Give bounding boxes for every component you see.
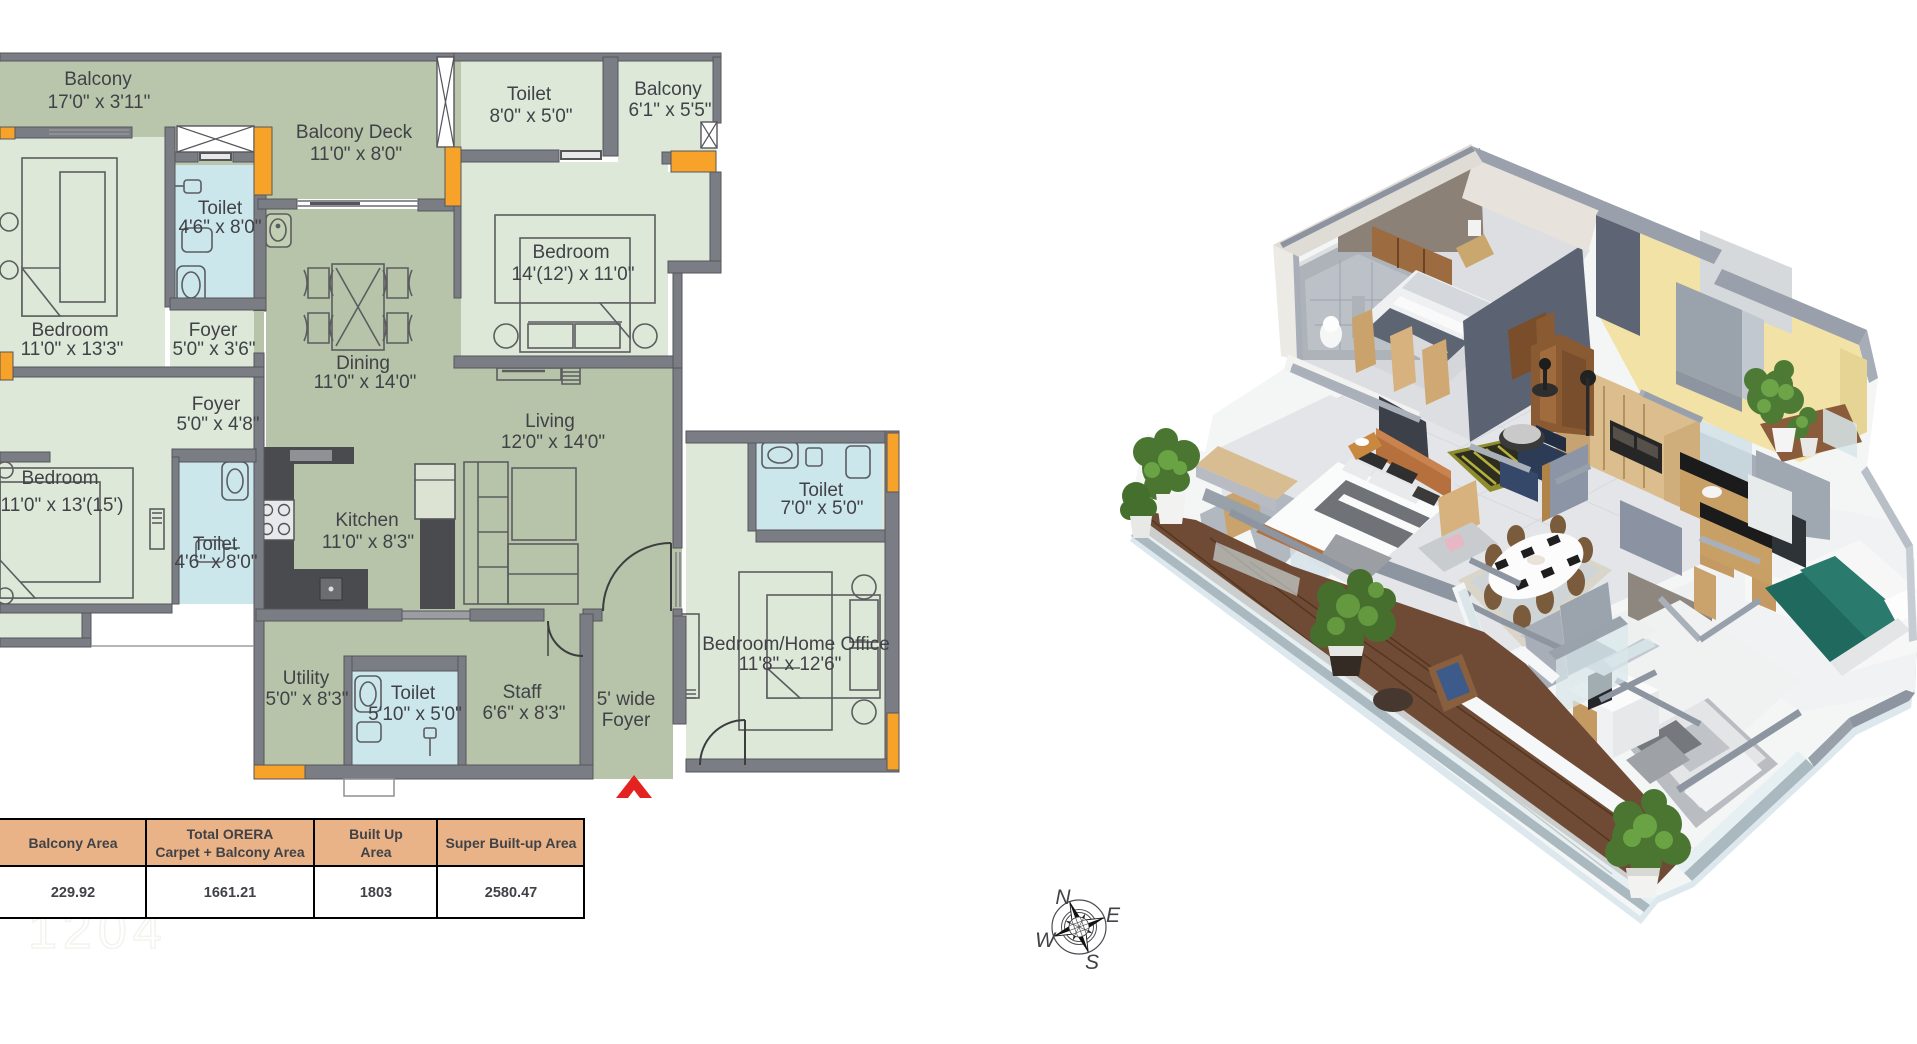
svg-text:11'0" x 13'3": 11'0" x 13'3" (21, 339, 124, 360)
svg-text:14'(12') x 11'0": 14'(12') x 11'0" (512, 264, 635, 285)
svg-text:11'0" x 13'(15'): 11'0" x 13'(15') (1, 495, 124, 516)
svg-text:11'0" x 14'0": 11'0" x 14'0" (314, 372, 417, 393)
svg-text:Utility: Utility (283, 668, 330, 689)
svg-text:Bedroom/Home Office: Bedroom/Home Office (702, 634, 890, 655)
svg-text:S: S (1085, 951, 1099, 974)
svg-text:1661.21: 1661.21 (204, 885, 256, 901)
svg-text:N: N (1055, 886, 1071, 909)
svg-text:Toilet: Toilet (391, 683, 436, 704)
svg-text:6'6" x 8'3": 6'6" x 8'3" (482, 703, 565, 724)
svg-text:5'10" x 5'0": 5'10" x 5'0" (368, 704, 462, 725)
svg-text:229.92: 229.92 (51, 885, 95, 901)
svg-text:5'0" x 8'3": 5'0" x 8'3" (265, 689, 348, 710)
svg-text:11'0" x 8'0": 11'0" x 8'0" (310, 144, 402, 165)
svg-text:Bedroom: Bedroom (31, 320, 108, 341)
svg-text:4'6" x 8'0": 4'6" x 8'0" (178, 217, 261, 238)
svg-text:6'1" x 5'5": 6'1" x 5'5" (628, 100, 711, 121)
svg-text:11'0" x 8'3": 11'0" x 8'3" (322, 532, 414, 553)
svg-text:Staff: Staff (503, 682, 542, 703)
svg-text:Living: Living (525, 411, 575, 432)
svg-text:2580.47: 2580.47 (485, 885, 537, 901)
svg-text:1803: 1803 (360, 885, 392, 901)
svg-text:Balcony Deck: Balcony Deck (296, 122, 413, 143)
svg-text:Carpet + Balcony Area: Carpet + Balcony Area (155, 844, 304, 860)
svg-text:5'0" x 4'8": 5'0" x 4'8" (176, 414, 259, 435)
svg-text:12'0" x 14'0": 12'0" x 14'0" (501, 432, 605, 453)
svg-text:Bedroom: Bedroom (21, 468, 98, 489)
svg-text:4'6" x 8'0": 4'6" x 8'0" (174, 552, 257, 573)
svg-text:11'8" x 12'6": 11'8" x 12'6" (739, 654, 842, 675)
svg-text:Dining: Dining (336, 353, 390, 374)
svg-text:7'0" x 5'0": 7'0" x 5'0" (780, 498, 863, 519)
svg-text:Bedroom: Bedroom (532, 242, 609, 263)
svg-text:5' wide: 5' wide (597, 689, 656, 710)
svg-text:E: E (1106, 904, 1121, 927)
svg-text:Foyer: Foyer (192, 394, 241, 415)
svg-text:W: W (1035, 929, 1057, 952)
svg-text:Toilet: Toilet (507, 84, 552, 105)
svg-text:Balcony: Balcony (634, 79, 702, 100)
svg-text:Foyer: Foyer (602, 710, 651, 731)
svg-text:Foyer: Foyer (189, 320, 238, 341)
svg-text:8'0" x 5'0": 8'0" x 5'0" (489, 106, 572, 127)
svg-text:Balcony Area: Balcony Area (29, 835, 118, 851)
svg-text:Super Built-up Area: Super Built-up Area (446, 835, 577, 851)
svg-text:Total ORERA: Total ORERA (187, 826, 274, 842)
svg-text:Toilet: Toilet (198, 198, 243, 219)
svg-text:Balcony: Balcony (64, 69, 132, 90)
svg-text:Area: Area (360, 844, 391, 860)
svg-text:5'0" x 3'6": 5'0" x 3'6" (172, 339, 255, 360)
svg-text:Kitchen: Kitchen (335, 510, 398, 531)
svg-text:Built Up: Built Up (349, 826, 403, 842)
svg-text:17'0" x 3'11": 17'0" x 3'11" (48, 92, 151, 113)
